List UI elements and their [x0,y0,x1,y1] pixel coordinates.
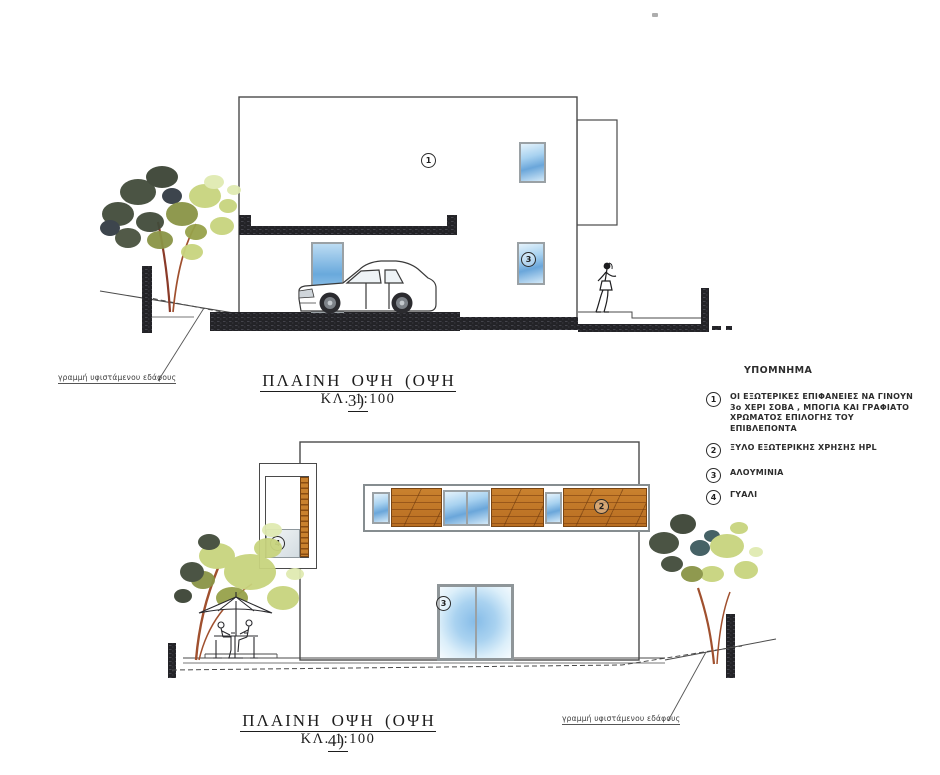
legend-item: 3 ΑΛΟΥΜΙΝΙΑ [706,468,934,483]
legend-item: 1 ΟΙ ΕΞΩΤΕΡΙΚΕΣ ΕΠΙΦΑΝΕΙΕΣ ΝΑ ΓΙΝΟΥΝ 3ο … [706,392,934,434]
legend: ΥΠΟΜΝΗΜΑ 1 ΟΙ ΕΞΩΤΕΡΙΚΕΣ ΕΠΙΦΑΝΕΙΕΣ ΝΑ Γ… [706,365,934,505]
ground-label-bottom: γραμμή υφιστάμενου εδάφους [562,714,680,725]
legend-item: 2 ΞΥΛΟ ΕΞΩΤΕΡΙΚΗΣ ΧΡΗΣΗΣ HPL [706,443,934,458]
elevation4-scale: ΚΛ. 1:100 [226,731,450,748]
drawing-sheet: 1 3 2 3 4 [0,0,940,775]
legend-item: 4 ΓΥΑΛΙ [706,490,934,505]
legend-callout-2: 2 [706,443,721,458]
elevation3-scale: ΚΛ. 1:100 [246,391,470,408]
ground-label-top: γραμμή υφιστάμενου εδάφους [58,373,176,384]
legend-callout-1: 1 [706,392,721,407]
text-layer: ΠΛΑΙΝΗ ΟΨΗ (ΟΨΗ 3) ΚΛ. 1:100 ΠΛΑΙΝΗ ΟΨΗ … [0,0,940,775]
legend-callout-4: 4 [706,490,721,505]
legend-callout-3: 3 [706,468,721,483]
legend-text-3: ΑΛΟΥΜΙΝΙΑ [730,468,916,479]
legend-text-1: ΟΙ ΕΞΩΤΕΡΙΚΕΣ ΕΠΙΦΑΝΕΙΕΣ ΝΑ ΓΙΝΟΥΝ 3ο ΧΕ… [730,392,916,434]
legend-heading: ΥΠΟΜΝΗΜΑ [706,365,934,376]
artifact-mark [652,13,658,17]
legend-text-2: ΞΥΛΟ ΕΞΩΤΕΡΙΚΗΣ ΧΡΗΣΗΣ HPL [730,443,916,454]
legend-text-4: ΓΥΑΛΙ [730,490,916,501]
